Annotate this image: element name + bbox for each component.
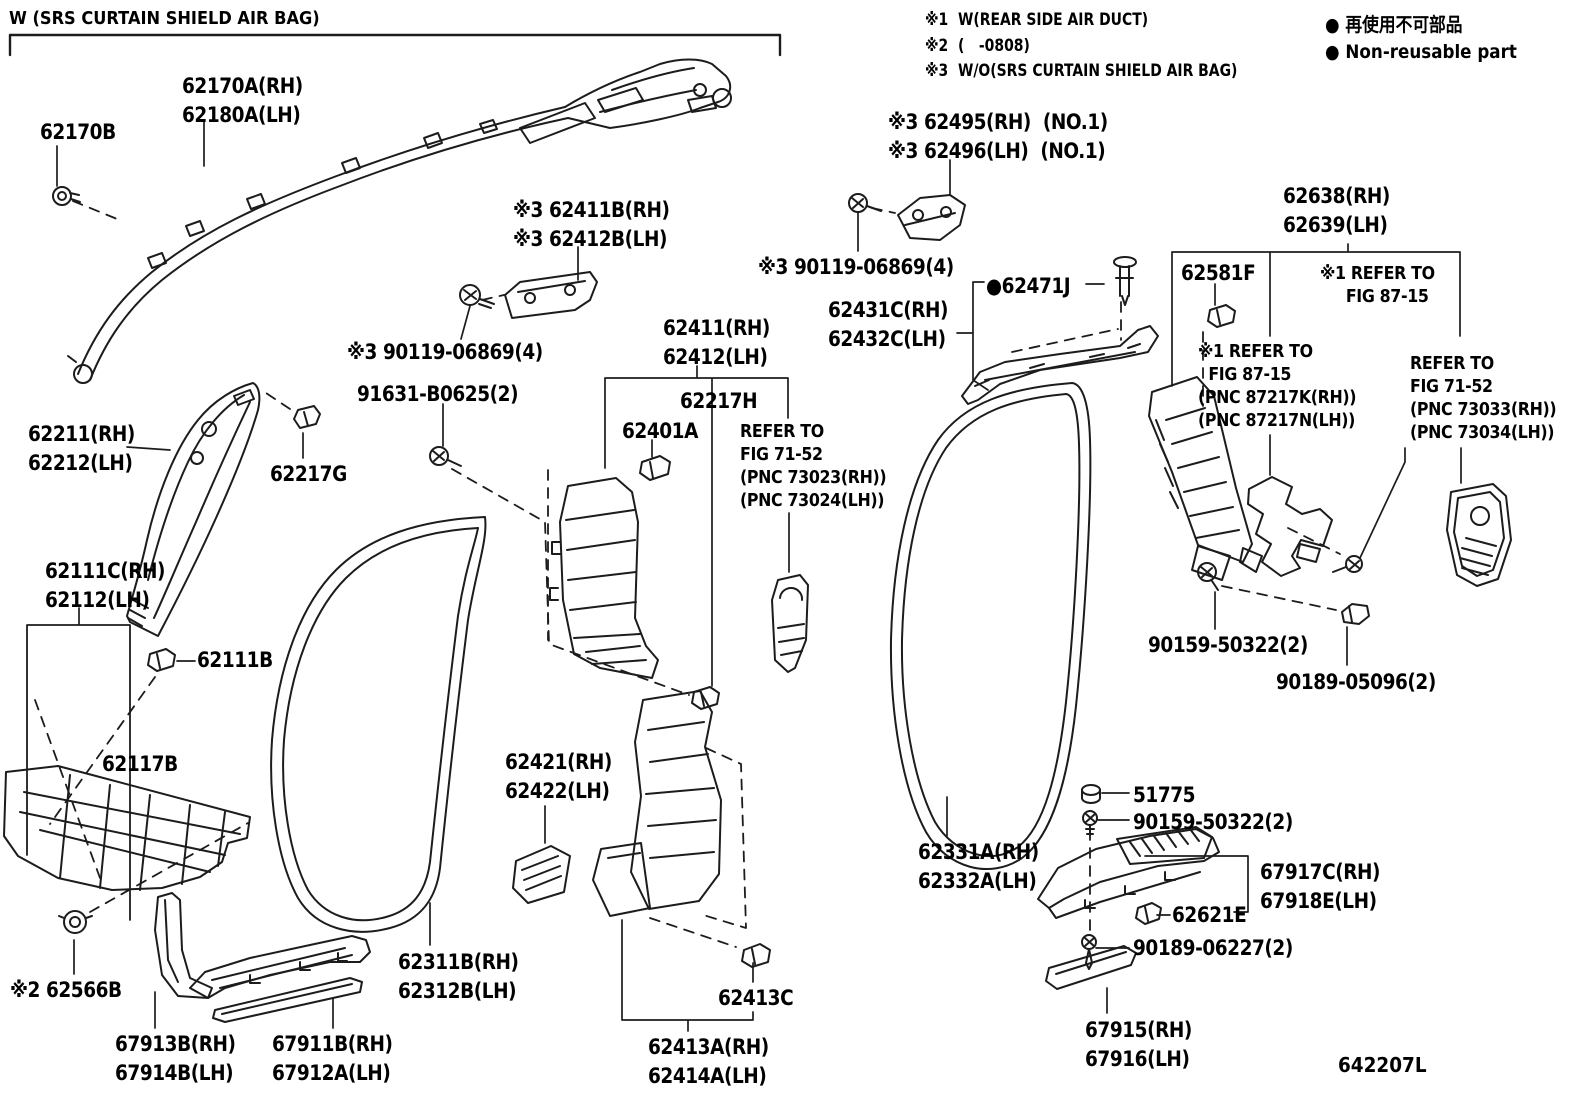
part-label-62581f: 62581F xyxy=(1181,259,1255,288)
part-label-90119-left: ※3 90119-06869(4) xyxy=(347,338,543,367)
legend-non-reusable-jp: ● 再使用不可部品 xyxy=(1325,10,1462,37)
part-label-refer-8715-left: ※1 REFER TO FIG 87-15(PNC 87217K(RH))(PN… xyxy=(1198,340,1356,432)
part-label-62413a: 62413A(RH)62414A(LH) xyxy=(648,1033,769,1091)
part-label-62401a: 62401A xyxy=(622,417,698,446)
part-label-90119-right: ※3 90119-06869(4) xyxy=(758,253,954,282)
part-label-62411b: ※3 62411B(RH)※3 62412B(LH) xyxy=(513,196,670,254)
b-pillar-upper-trim-drawing xyxy=(550,478,658,678)
part-label-62170b: 62170B xyxy=(40,118,116,147)
srs-bracket xyxy=(10,35,780,55)
part-label-62217g: 62217G xyxy=(270,460,347,489)
clip-62217g xyxy=(294,406,320,428)
legend-en-text: Non-reusable part xyxy=(1345,41,1516,63)
front-door-scuff-67911b-drawing xyxy=(190,936,370,1022)
nut-62566b xyxy=(59,911,92,933)
front-pillar-scuff-67913b-drawing xyxy=(155,893,212,998)
belt-anchor-cover-drawing xyxy=(772,575,808,672)
part-label-67915: 67915(RH)67916(LH) xyxy=(1085,1016,1192,1074)
clip-62413c xyxy=(742,944,770,967)
part-label-62421: 62421(RH)62422(LH) xyxy=(505,748,612,806)
part-label-62170a: 62170A(RH)62180A(LH) xyxy=(182,72,303,130)
non-reusable-bullet-icon: ● xyxy=(1325,14,1340,36)
note-3: ※3 W/O(SRS CURTAIN SHIELD AIR BAG) xyxy=(925,61,1237,81)
part-label-67911b: 67911B(RH)67912A(LH) xyxy=(272,1030,393,1088)
roof-rail-garnish-drawing xyxy=(962,326,1158,404)
part-label-90189-mid: 90189-05096(2) xyxy=(1276,668,1436,697)
bracket-62411b-drawing xyxy=(505,272,597,318)
part-label-62411: 62411(RH)62412(LH) xyxy=(663,314,770,372)
part-label-62311b: 62311B(RH)62312B(LH) xyxy=(398,948,519,1006)
part-label-62413c: 62413C xyxy=(718,984,793,1013)
clip-62401a xyxy=(640,456,670,480)
part-label-90189-bottom: 90189-06227(2) xyxy=(1133,934,1293,963)
part-label-62471j: ●62471J xyxy=(986,272,1070,301)
page-title: W (SRS CURTAIN SHIELD AIR BAG) xyxy=(9,8,320,29)
part-label-91631: 91631-B0625(2) xyxy=(357,380,518,409)
part-label-refer-7152-center: REFER TOFIG 71-52(PNC 73023(RH))(PNC 730… xyxy=(740,420,886,512)
screw-90159-mid xyxy=(1198,563,1218,590)
pin-62471j xyxy=(1114,257,1136,305)
clip-62621e xyxy=(1136,903,1161,924)
legend-jp-text: 再使用不可部品 xyxy=(1345,14,1462,36)
screw-90119-left xyxy=(460,285,494,308)
front-door-seal-drawing xyxy=(271,517,485,932)
diagram-code: 642207L xyxy=(1338,1053,1427,1077)
cowl-side-trim-drawing xyxy=(4,766,250,890)
part-label-67913b: 67913B(RH)67914B(LH) xyxy=(115,1030,236,1088)
part-label-62331a: 62331A(RH)62332A(LH) xyxy=(918,838,1039,896)
part-label-90159-bottom: 90159-50322(2) xyxy=(1133,808,1293,837)
part-label-62111c: 62111C(RH)62112(LH) xyxy=(45,557,165,615)
clip-90189-mid xyxy=(1342,604,1369,624)
clip-62581f xyxy=(1208,305,1235,327)
rear-door-seal-drawing xyxy=(891,383,1090,869)
note-2: ※2 ( -0808) xyxy=(925,36,1030,56)
part-label-refer-8715-right: ※1 REFER TO FIG 87-15 xyxy=(1320,262,1435,308)
part-label-refer-7152-right: REFER TOFIG 71-52(PNC 73033(RH))(PNC 730… xyxy=(1410,352,1556,444)
legend-non-reusable-en: ● Non-reusable part xyxy=(1325,41,1517,63)
diagram-line-art xyxy=(0,0,1592,1099)
part-label-62495: ※3 62495(RH) (NO.1)※3 62496(LH) (NO.1) xyxy=(888,108,1108,166)
part-label-62111b: 62111B xyxy=(197,646,273,675)
rear-step-strip-67915-drawing xyxy=(1046,946,1136,989)
part-label-62566b: ※2 62566B xyxy=(10,976,122,1005)
part-label-62431c: 62431C(RH)62432C(LH) xyxy=(828,296,948,354)
part-label-67917c: 67917C(RH)67918E(LH) xyxy=(1260,858,1380,916)
clip-62217h xyxy=(692,687,719,709)
cap-51775 xyxy=(1082,785,1100,803)
b-pillar-lower-trim-drawing xyxy=(593,691,721,916)
part-label-62621e: 62621E xyxy=(1172,901,1246,930)
bracket-62495-drawing xyxy=(898,195,965,240)
part-label-62117b: 62117B xyxy=(102,750,178,779)
parts-diagram-page: W (SRS CURTAIN SHIELD AIR BAG) ※1 W(REAR… xyxy=(0,0,1592,1099)
part-label-62211: 62211(RH)62212(LH) xyxy=(28,420,135,478)
part-label-62217h: 62217H xyxy=(680,387,757,416)
non-reusable-bullet-icon: ● xyxy=(1325,41,1340,63)
screw-91631 xyxy=(430,447,461,466)
part-label-51775: 51775 xyxy=(1133,781,1195,810)
right-lower-trim-drawing xyxy=(1447,484,1511,586)
clip-62111b xyxy=(148,649,175,671)
vent-62421-drawing xyxy=(513,846,570,903)
screw-refer-right xyxy=(1333,556,1362,572)
part-label-90159-mid: 90159-50322(2) xyxy=(1148,631,1308,660)
part-label-62638: 62638(RH)62639(LH) xyxy=(1283,182,1390,240)
note-1: ※1 W(REAR SIDE AIR DUCT) xyxy=(925,10,1148,30)
